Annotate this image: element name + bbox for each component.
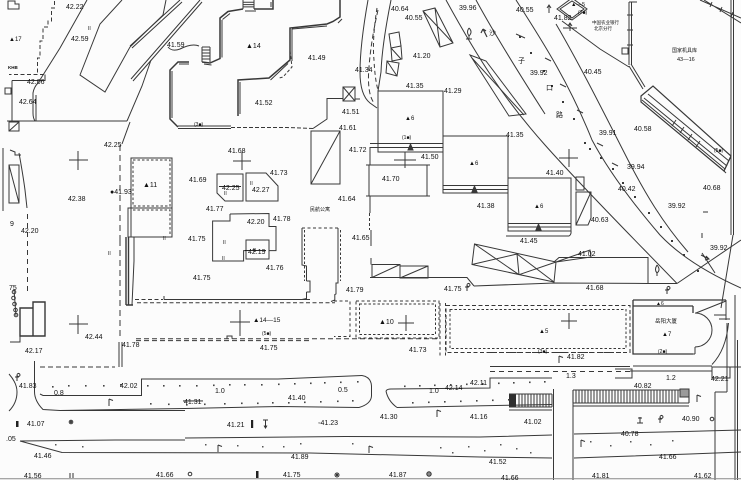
svg-text:41.02: 41.02 — [578, 251, 596, 258]
svg-text:41.81: 41.81 — [592, 473, 610, 480]
svg-text:▲6: ▲6 — [656, 301, 664, 307]
svg-text:39.92: 39.92 — [668, 203, 686, 210]
svg-text:41.64: 41.64 — [338, 196, 356, 203]
svg-text:41.77: 41.77 — [206, 206, 224, 213]
svg-text:II: II — [108, 251, 111, 257]
svg-text:口: 口 — [546, 84, 553, 92]
svg-text:41.40: 41.40 — [546, 170, 564, 177]
svg-text:▲6: ▲6 — [405, 116, 415, 122]
svg-text:40.78: 40.78 — [621, 431, 639, 438]
svg-text:75: 75 — [9, 285, 17, 292]
svg-text:40.64: 40.64 — [391, 6, 409, 13]
svg-text:41.50: 41.50 — [421, 154, 439, 161]
svg-text:39.94: 39.94 — [627, 164, 645, 171]
svg-text:(5■): (5■) — [262, 331, 271, 337]
svg-text:42.11: 42.11 — [470, 380, 487, 387]
svg-text:42.44: 42.44 — [85, 334, 103, 341]
svg-text:42.06: 42.06 — [27, 79, 45, 86]
svg-text:41.16: 41.16 — [470, 414, 488, 421]
svg-text:▲17: ▲17 — [9, 37, 22, 43]
svg-text:II: II — [223, 240, 226, 246]
svg-text:路: 路 — [556, 110, 563, 119]
svg-text:1.0: 1.0 — [429, 388, 439, 395]
svg-text:40.82: 40.82 — [634, 383, 652, 390]
svg-text:41.30: 41.30 — [380, 414, 398, 421]
svg-text:42.22: 42.22 — [66, 4, 84, 11]
svg-text:▲7: ▲7 — [662, 332, 672, 338]
svg-text:39.92: 39.92 — [710, 245, 728, 252]
svg-text:42.02: 42.02 — [120, 383, 138, 390]
svg-text:41.78: 41.78 — [273, 216, 291, 223]
svg-text:41.75: 41.75 — [283, 472, 301, 479]
svg-text:41.68: 41.68 — [228, 148, 246, 155]
svg-text:民航公寓: 民航公寓 — [310, 206, 330, 213]
svg-text:40.42: 40.42 — [618, 186, 636, 193]
svg-text:▲—5: ▲—5 — [571, 2, 585, 8]
svg-text:41.40: 41.40 — [288, 395, 306, 402]
svg-text:39.92: 39.92 — [530, 70, 548, 77]
svg-text:41.82: 41.82 — [567, 354, 585, 361]
svg-text:41.31: 41.31 — [184, 399, 202, 406]
svg-text:39.96: 39.96 — [459, 5, 477, 12]
svg-text:1.0: 1.0 — [215, 388, 225, 395]
svg-text:42.20: 42.20 — [247, 219, 265, 226]
svg-text:.05: .05 — [6, 436, 16, 443]
svg-text:41.61: 41.61 — [339, 125, 357, 132]
svg-text:0.5: 0.5 — [338, 387, 348, 394]
svg-text:39.91: 39.91 — [599, 130, 617, 137]
svg-text:41.56: 41.56 — [24, 473, 42, 480]
svg-text:42.38: 42.38 — [68, 196, 86, 203]
svg-text:▲11: ▲11 — [143, 182, 157, 189]
svg-text:▲5: ▲5 — [539, 329, 549, 335]
svg-text:42.21: 42.21 — [711, 376, 729, 383]
svg-text:II: II — [224, 191, 227, 197]
svg-text:41.07: 41.07 — [27, 421, 45, 428]
svg-text:43—16: 43—16 — [677, 57, 695, 63]
svg-text:41.79: 41.79 — [346, 287, 364, 294]
svg-text:41.66: 41.66 — [501, 475, 519, 480]
svg-text:II: II — [163, 236, 166, 242]
svg-text:40.45: 40.45 — [584, 69, 602, 76]
svg-text:▲6: ▲6 — [469, 161, 479, 167]
svg-text:KHB: KHB — [8, 65, 18, 70]
svg-text:II: II — [222, 256, 225, 262]
svg-text:(1■): (1■) — [402, 135, 411, 141]
svg-text:●41.93: ●41.93 — [110, 189, 132, 196]
svg-text:41.21: 41.21 — [227, 422, 245, 429]
svg-text:41.66: 41.66 — [156, 472, 174, 479]
svg-text:42.59: 42.59 — [71, 36, 89, 43]
svg-text:中国农业银行: 中国农业银行 — [592, 19, 619, 26]
svg-text:40.58: 40.58 — [634, 126, 652, 133]
svg-text:40.55: 40.55 — [405, 15, 423, 22]
svg-text:41.29: 41.29 — [444, 88, 462, 95]
svg-text:1.2: 1.2 — [666, 375, 676, 382]
svg-text:42.27: 42.27 — [252, 187, 270, 194]
svg-text:41.52: 41.52 — [255, 100, 273, 107]
svg-text:41.82: 41.82 — [554, 15, 572, 22]
svg-text:◦41.23: ◦41.23 — [318, 420, 338, 427]
svg-text:41.66: 41.66 — [659, 454, 677, 461]
svg-text:41.59: 41.59 — [167, 42, 185, 49]
svg-text:42.64: 42.64 — [19, 99, 37, 106]
svg-text:0.8: 0.8 — [54, 390, 64, 397]
svg-text:41.75: 41.75 — [193, 275, 211, 282]
svg-text:40.55: 40.55 — [516, 7, 534, 14]
svg-text:41.78: 41.78 — [122, 342, 140, 349]
svg-text:41.46: 41.46 — [34, 453, 52, 460]
svg-text:沙: 沙 — [489, 29, 496, 37]
svg-text:(5■): (5■) — [714, 148, 723, 154]
svg-text:II: II — [88, 26, 91, 32]
svg-text:41.87: 41.87 — [389, 472, 407, 479]
svg-text:41.02: 41.02 — [524, 419, 542, 426]
svg-text:41.73: 41.73 — [270, 170, 288, 177]
svg-text:41.75: 41.75 — [188, 236, 206, 243]
svg-text:42.25: 42.25 — [104, 142, 122, 149]
svg-text:41.51: 41.51 — [342, 109, 360, 116]
svg-text:子: 子 — [518, 57, 525, 65]
svg-text:1.3: 1.3 — [566, 373, 576, 380]
svg-text:41.69: 41.69 — [189, 177, 207, 184]
svg-text:41.52: 41.52 — [489, 459, 507, 466]
svg-text:41.45: 41.45 — [520, 238, 538, 245]
svg-text:41.72: 41.72 — [349, 147, 367, 154]
svg-text:42.17: 42.17 — [25, 348, 43, 355]
svg-text:岳阳大厦: 岳阳大厦 — [655, 317, 678, 325]
svg-text:41.38: 41.38 — [477, 203, 495, 210]
svg-text:41.49: 41.49 — [308, 55, 326, 62]
svg-text:(3■): (3■) — [194, 122, 203, 128]
svg-text:41.75: 41.75 — [444, 286, 462, 293]
svg-text:(7■): (7■) — [578, 10, 587, 16]
svg-text:41.34: 41.34 — [355, 67, 373, 74]
svg-text:41.83: 41.83 — [19, 383, 37, 390]
svg-text:41.89: 41.89 — [291, 454, 309, 461]
svg-text:▲6: ▲6 — [534, 204, 544, 210]
svg-text:40.63: 40.63 — [591, 217, 609, 224]
svg-text:41.20: 41.20 — [413, 53, 431, 60]
svg-text:40.90: 40.90 — [682, 416, 700, 423]
svg-text:9: 9 — [10, 221, 14, 228]
svg-text:41.70: 41.70 — [382, 176, 400, 183]
svg-text:41.65: 41.65 — [352, 235, 370, 242]
svg-text:42.20: 42.20 — [21, 228, 39, 235]
svg-text:41.75: 41.75 — [260, 345, 278, 352]
svg-text:▲14—15: ▲14—15 — [253, 317, 281, 324]
svg-text:41.62: 41.62 — [694, 473, 712, 480]
svg-text:40.68: 40.68 — [703, 185, 721, 192]
svg-text:41.35: 41.35 — [506, 132, 524, 139]
svg-text:42.14: 42.14 — [445, 385, 463, 392]
svg-text:(2■): (2■) — [658, 349, 667, 355]
svg-text:41.76: 41.76 — [266, 265, 284, 272]
svg-text:北京分行: 北京分行 — [594, 25, 612, 32]
svg-text:▲14: ▲14 — [246, 43, 261, 50]
svg-text:(3■): (3■) — [538, 349, 547, 355]
svg-text:▲10: ▲10 — [379, 319, 394, 326]
svg-text:41.68: 41.68 — [586, 285, 604, 292]
svg-text:41.73: 41.73 — [409, 347, 427, 354]
svg-text:国家机具库: 国家机具库 — [672, 47, 697, 54]
svg-text:II: II — [250, 181, 253, 187]
svg-text:41.35: 41.35 — [406, 83, 424, 90]
